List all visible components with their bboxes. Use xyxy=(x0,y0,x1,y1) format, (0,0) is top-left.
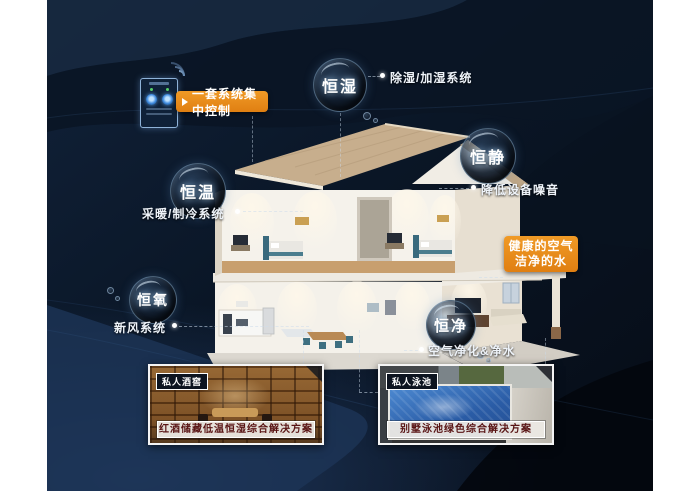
connector-highlight xyxy=(479,277,503,278)
dot-purity xyxy=(419,347,424,352)
stage: 一套系统集中控制 恒湿 除湿/加湿系统 恒静 降低设备噪音 恒温 采暖/制冷系统… xyxy=(47,0,653,491)
photo-corner-ribbon xyxy=(536,366,552,382)
control-label-text: 一套系统集中控制 xyxy=(192,85,268,119)
highlight-line1: 健康的空气 xyxy=(508,239,573,254)
wine-photo-caption: 红酒储藏低温恒湿综合解决方案 xyxy=(157,421,315,438)
bubble-humidity-label: 恒湿 xyxy=(322,73,358,97)
infographic-canvas: 一套系统集中控制 恒湿 除湿/加湿系统 恒静 降低设备噪音 恒温 采暖/制冷系统… xyxy=(0,0,700,497)
connector-pool-photo xyxy=(545,338,546,364)
pool-photo-caption: 别墅泳池绿色综合解决方案 xyxy=(387,421,545,438)
decor-bubble xyxy=(115,296,120,301)
desc-purity: 空气净化&净水 xyxy=(428,342,516,359)
bubble-purity-label: 恒净 xyxy=(434,315,468,336)
pool-shine xyxy=(414,394,474,420)
bubble-quiet-label: 恒静 xyxy=(470,144,506,168)
bubble-humidity: 恒湿 xyxy=(313,58,367,112)
dot-quiet xyxy=(471,185,476,190)
pool-photo: 私人泳池 别墅泳池绿色综合解决方案 xyxy=(378,364,554,445)
connector-wine-photo xyxy=(303,330,304,364)
wine-table xyxy=(212,408,258,417)
highlight-box: 健康的空气 洁净的水 xyxy=(504,236,578,272)
smart-panel-icon xyxy=(140,78,178,128)
connector-control xyxy=(252,116,253,162)
desc-humidity: 除湿/加湿系统 xyxy=(390,69,472,86)
highlight-line2: 洁净的水 xyxy=(515,254,567,269)
wifi-icon xyxy=(168,63,186,77)
desc-temperature: 采暖/制冷系统 xyxy=(142,205,224,222)
photo-corner-ribbon xyxy=(306,366,322,382)
connector-humidity xyxy=(340,113,341,177)
dot-oxygen xyxy=(172,323,177,328)
connector-mid xyxy=(359,330,360,392)
decor-bubble xyxy=(107,287,114,294)
connector-humidity-h xyxy=(368,76,380,77)
dot-temperature xyxy=(235,209,240,214)
desc-oxygen: 新风系统 xyxy=(114,319,166,336)
connector-mid-h xyxy=(359,392,378,393)
bubble-temperature-label: 恒温 xyxy=(180,179,216,203)
wine-photo-tag: 私人酒窖 xyxy=(156,373,208,390)
arrow-icon xyxy=(182,98,188,106)
dot-humidity xyxy=(380,73,385,78)
decor-bubble xyxy=(363,112,371,120)
bubble-oxygen: 恒氧 xyxy=(129,276,177,324)
decor-bubble xyxy=(373,118,378,123)
connector-temperature xyxy=(243,211,303,212)
connector-purity xyxy=(404,350,418,351)
wine-cellar-photo: 私人酒窖 红酒储藏低温恒湿综合解决方案 xyxy=(148,364,324,445)
connector-quiet xyxy=(439,188,469,189)
bubble-oxygen-label: 恒氧 xyxy=(137,290,169,310)
desc-quiet: 降低设备噪音 xyxy=(481,181,559,198)
bubble-quiet: 恒静 xyxy=(460,128,516,184)
connector-oxygen xyxy=(179,326,309,327)
pool-photo-tag: 私人泳池 xyxy=(386,373,438,390)
control-label: 一套系统集中控制 xyxy=(176,91,268,112)
